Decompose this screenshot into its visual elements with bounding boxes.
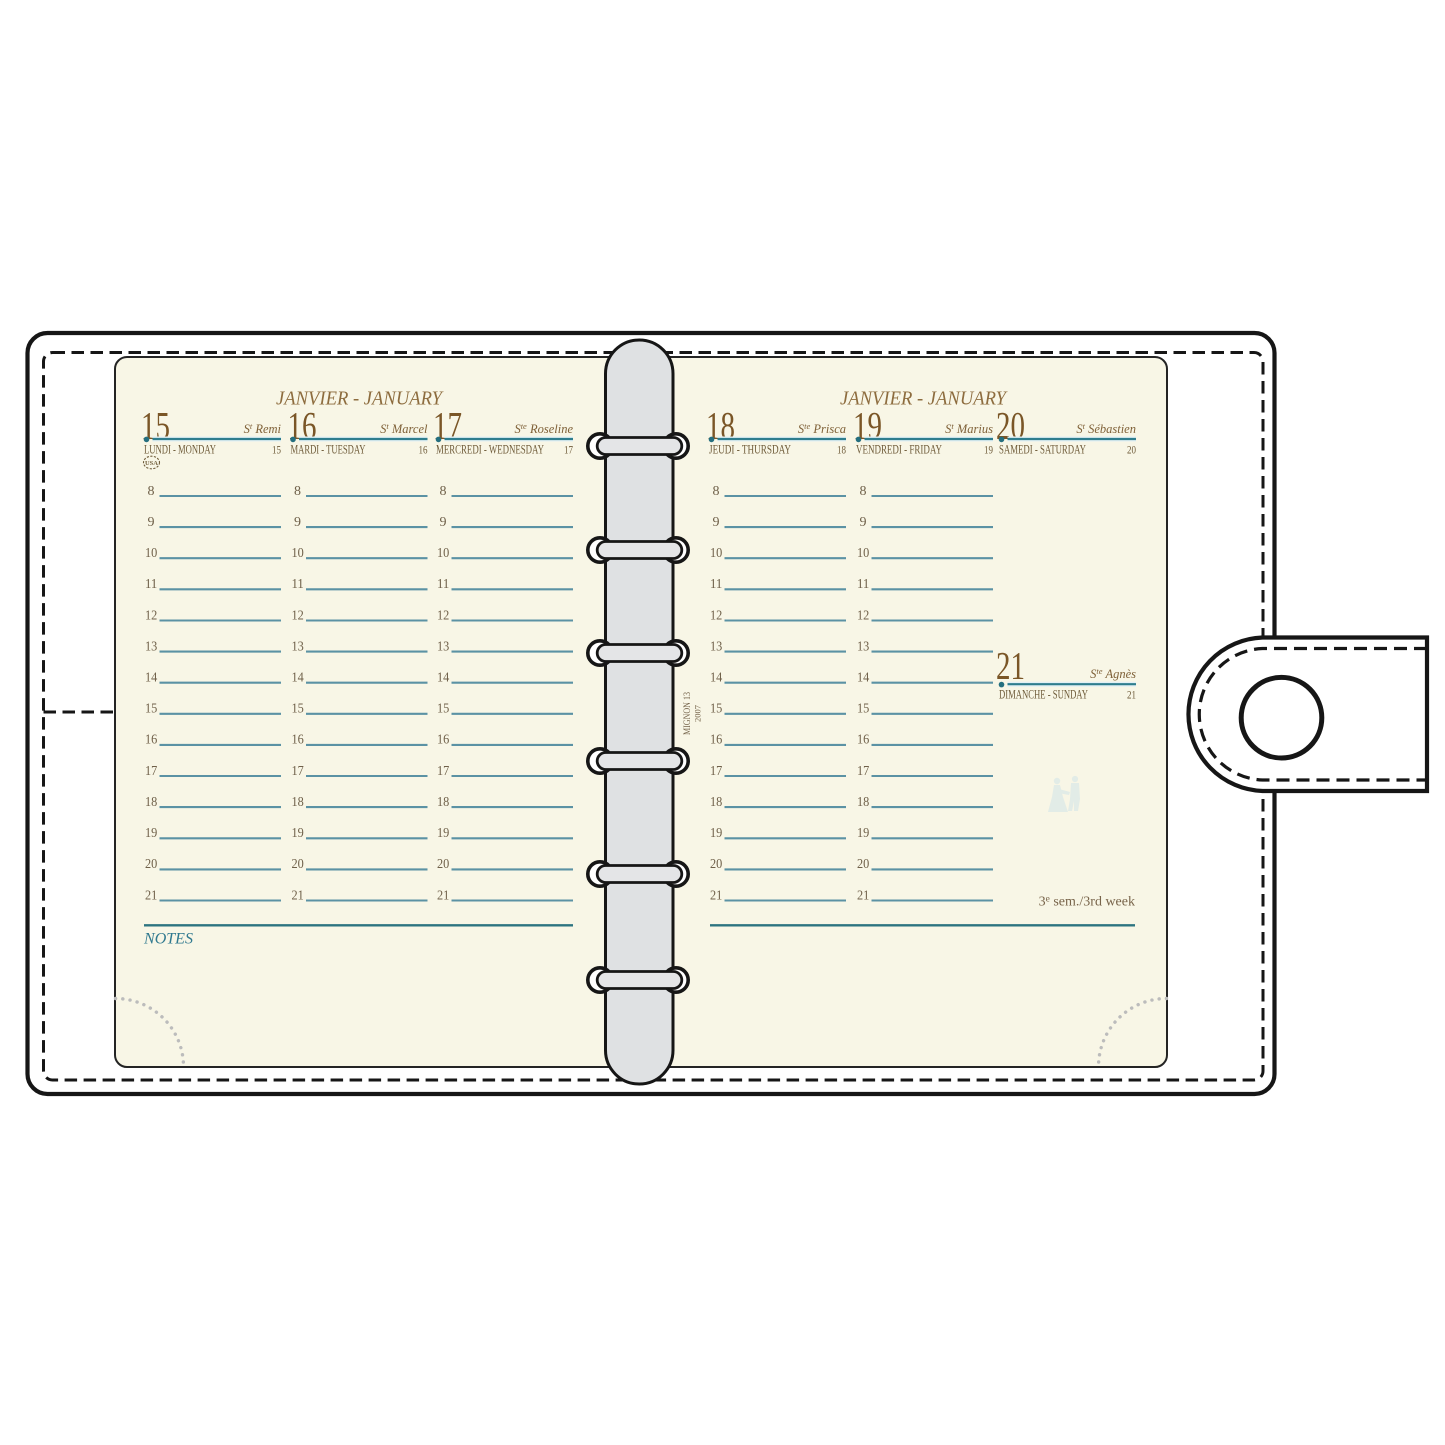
svg-text:USA: USA xyxy=(145,460,158,467)
svg-text:17: 17 xyxy=(145,764,157,779)
svg-text:LUNDI - MONDAY: LUNDI - MONDAY xyxy=(144,442,216,456)
svg-text:JEUDI - THURSDAY: JEUDI - THURSDAY xyxy=(709,442,791,456)
svg-text:18: 18 xyxy=(145,795,157,810)
svg-text:DIMANCHE - SUNDAY: DIMANCHE - SUNDAY xyxy=(999,688,1088,702)
svg-text:15: 15 xyxy=(292,702,304,717)
svg-text:19: 19 xyxy=(145,826,157,841)
svg-text:9: 9 xyxy=(294,515,301,530)
svg-text:8: 8 xyxy=(860,484,867,499)
svg-text:16: 16 xyxy=(419,442,428,456)
svg-text:14: 14 xyxy=(145,671,157,686)
svg-text:16: 16 xyxy=(710,733,722,748)
svg-text:15: 15 xyxy=(272,442,281,456)
svg-text:20: 20 xyxy=(145,857,157,872)
svg-text:15: 15 xyxy=(857,702,869,717)
svg-text:17: 17 xyxy=(292,764,304,779)
svg-text:19: 19 xyxy=(984,442,993,456)
svg-text:9: 9 xyxy=(148,515,155,530)
svg-text:18: 18 xyxy=(837,442,846,456)
svg-text:16: 16 xyxy=(437,733,449,748)
svg-text:10: 10 xyxy=(145,546,157,561)
svg-text:9: 9 xyxy=(860,515,867,530)
svg-text:MARDI - TUESDAY: MARDI - TUESDAY xyxy=(291,442,366,456)
svg-text:16: 16 xyxy=(292,733,304,748)
svg-text:17: 17 xyxy=(710,764,722,779)
svg-text:21: 21 xyxy=(292,888,304,903)
svg-text:12: 12 xyxy=(145,608,157,623)
svg-text:18: 18 xyxy=(710,795,722,810)
svg-text:11: 11 xyxy=(145,577,157,592)
svg-text:17: 17 xyxy=(437,764,449,779)
svg-text:11: 11 xyxy=(710,577,722,592)
svg-text:St Sébastien: St Sébastien xyxy=(1076,421,1136,436)
svg-text:20: 20 xyxy=(710,857,722,872)
svg-text:19: 19 xyxy=(710,826,722,841)
svg-text:21: 21 xyxy=(145,888,157,903)
svg-text:20: 20 xyxy=(1127,442,1136,456)
svg-text:21: 21 xyxy=(437,888,449,903)
svg-text:15: 15 xyxy=(710,702,722,717)
svg-text:14: 14 xyxy=(857,671,869,686)
svg-text:20: 20 xyxy=(857,857,869,872)
svg-text:20: 20 xyxy=(292,857,304,872)
svg-text:19: 19 xyxy=(857,826,869,841)
svg-text:MERCREDI - WEDNESDAY: MERCREDI - WEDNESDAY xyxy=(436,442,544,456)
svg-text:19: 19 xyxy=(437,826,449,841)
svg-text:20: 20 xyxy=(437,857,449,872)
svg-text:13: 13 xyxy=(437,639,449,654)
svg-text:13: 13 xyxy=(857,639,869,654)
svg-text:18: 18 xyxy=(292,795,304,810)
svg-text:21: 21 xyxy=(710,888,722,903)
svg-text:14: 14 xyxy=(710,671,722,686)
svg-text:13: 13 xyxy=(292,639,304,654)
svg-text:15: 15 xyxy=(145,702,157,717)
svg-text:VENDREDI - FRIDAY: VENDREDI - FRIDAY xyxy=(856,442,942,456)
svg-text:SAMEDI - SATURDAY: SAMEDI - SATURDAY xyxy=(999,442,1086,456)
svg-text:14: 14 xyxy=(437,671,449,686)
svg-text:11: 11 xyxy=(857,577,869,592)
svg-text:19: 19 xyxy=(292,826,304,841)
svg-text:8: 8 xyxy=(294,484,301,499)
svg-text:12: 12 xyxy=(437,608,449,623)
svg-text:14: 14 xyxy=(292,671,304,686)
svg-text:MIGNON 13: MIGNON 13 xyxy=(683,692,693,735)
svg-text:2007: 2007 xyxy=(693,705,703,722)
svg-text:21: 21 xyxy=(857,888,869,903)
svg-text:12: 12 xyxy=(710,608,722,623)
svg-text:17: 17 xyxy=(564,442,573,456)
svg-text:21: 21 xyxy=(1127,688,1136,702)
svg-text:18: 18 xyxy=(437,795,449,810)
svg-text:15: 15 xyxy=(437,702,449,717)
svg-text:NOTES: NOTES xyxy=(143,931,193,948)
svg-text:3e sem./3rd week: 3e sem./3rd week xyxy=(1039,895,1135,910)
svg-text:16: 16 xyxy=(857,733,869,748)
svg-text:12: 12 xyxy=(292,608,304,623)
svg-text:17: 17 xyxy=(857,764,869,779)
svg-text:11: 11 xyxy=(437,577,449,592)
svg-text:13: 13 xyxy=(145,639,157,654)
svg-text:9: 9 xyxy=(713,515,720,530)
svg-text:12: 12 xyxy=(857,608,869,623)
svg-text:13: 13 xyxy=(710,639,722,654)
svg-text:11: 11 xyxy=(292,577,304,592)
svg-text:21: 21 xyxy=(996,645,1025,688)
svg-text:9: 9 xyxy=(440,515,447,530)
svg-text:St Remi: St Remi xyxy=(244,421,282,436)
svg-text:8: 8 xyxy=(440,484,447,499)
svg-text:10: 10 xyxy=(292,546,304,561)
svg-text:10: 10 xyxy=(437,546,449,561)
svg-text:8: 8 xyxy=(148,484,155,499)
svg-text:10: 10 xyxy=(710,546,722,561)
svg-text:18: 18 xyxy=(857,795,869,810)
svg-text:16: 16 xyxy=(145,733,157,748)
svg-text:10: 10 xyxy=(857,546,869,561)
svg-text:8: 8 xyxy=(713,484,720,499)
